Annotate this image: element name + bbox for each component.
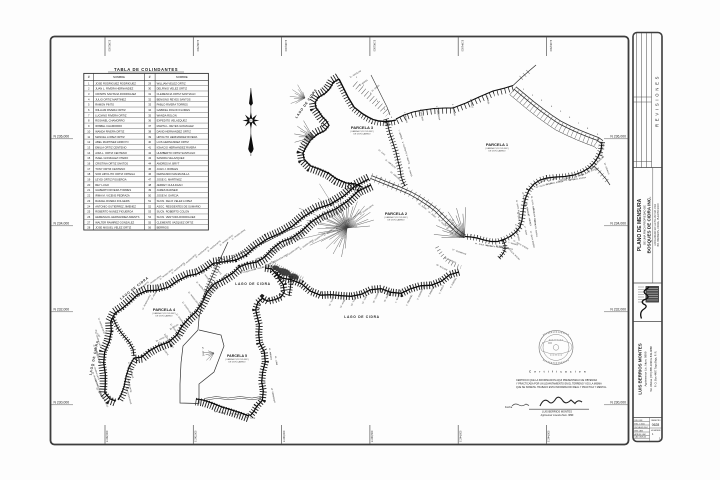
svg-text:QUE SE SOMETE. TRABAJO ESTA IN: QUE SE SOMETE. TRABAJO ESTA INFORMACION … xyxy=(516,386,607,389)
svg-text:55: 55 xyxy=(148,220,151,224)
svg-text:BENIGNO REYES SANTOS: BENIGNO REYES SANTOS xyxy=(157,97,191,101)
svg-text:MANUEL LOPEZ ORTIZ: MANUEL LOPEZ ORTIZ xyxy=(95,135,125,139)
svg-text:SUCN. FELIX VELEZ LOPEZ: SUCN. FELIX VELEZ LOPEZ xyxy=(157,199,193,203)
svg-text:LUIS BERRIOS MONTES: LUIS BERRIOS MONTES xyxy=(542,409,572,413)
svg-text:ISAEL GONZALEZ OTERO: ISAEL GONZALEZ OTERO xyxy=(95,156,128,160)
svg-text:43: 43 xyxy=(148,156,151,160)
svg-text:JOSE M. GARCIA: JOSE M. GARCIA xyxy=(157,194,179,198)
svg-text:HOJA NUM.: HOJA NUM. xyxy=(651,429,661,432)
svg-text:22: 22 xyxy=(87,194,90,198)
svg-text:ASOC. RESIDENTES DE SUMARIO: ASOC. RESIDENTES DE SUMARIO xyxy=(157,204,201,208)
svg-text:15: 15 xyxy=(87,156,90,160)
svg-text:JUAN J. ROBLES: JUAN J. ROBLES xyxy=(157,167,179,171)
svg-text:E 243,000: E 243,000 xyxy=(283,430,286,442)
svg-text:Fecha: Fecha xyxy=(505,405,513,409)
svg-text:SUCN. VENTURA RODRIGUEZ: SUCN. VENTURA RODRIGUEZ xyxy=(157,215,196,219)
svg-text:DE DON CAMINO: DE DON CAMINO xyxy=(489,150,506,153)
svg-text:53: 53 xyxy=(148,210,151,214)
svg-text:34: 34 xyxy=(148,108,151,112)
svg-text:SOR HIPOLITO ORTIZ ORTEGA: SOR HIPOLITO ORTIZ ORTEGA xyxy=(95,172,135,176)
svg-text:33: 33 xyxy=(148,103,151,107)
svg-text:31: 31 xyxy=(148,92,151,96)
svg-text:N 230,000: N 230,000 xyxy=(54,401,70,405)
svg-text:WANDA ROLON: WANDA ROLON xyxy=(157,113,177,117)
svg-text:CAD. 0628-04: CAD. 0628-04 xyxy=(635,436,646,439)
svg-text:LAGO DE CIDRA: LAGO DE CIDRA xyxy=(235,282,270,286)
svg-text:29: 29 xyxy=(148,81,151,85)
svg-text:BOSQUES DE CIDRA INC.: BOSQUES DE CIDRA INC. xyxy=(647,197,652,254)
svg-text:JAMES RADNER: JAMES RADNER xyxy=(157,188,178,192)
svg-text:11: 11 xyxy=(87,135,90,139)
svg-text:E 243,500: E 243,500 xyxy=(371,430,374,442)
svg-text:BO. BAYAMON, CIDRA, PUERTO RIC: BO. BAYAMON, CIDRA, PUERTO RICO xyxy=(657,203,660,246)
svg-text:N 232,000: N 232,000 xyxy=(54,308,70,312)
svg-text:#: # xyxy=(88,75,90,79)
svg-text:DELFINIO VELEZ ORTIZ: DELFINIO VELEZ ORTIZ xyxy=(157,87,188,91)
svg-text:23: 23 xyxy=(87,199,90,203)
svg-text:FERNANDO MANZANILLA: FERNANDO MANZANILLA xyxy=(157,172,190,176)
svg-text:CRISTINA ORTIZ SANTOS: CRISTINA ORTIZ SANTOS xyxy=(95,162,128,166)
svg-text:LUIS BERRIOS MONTES: LUIS BERRIOS MONTES xyxy=(638,343,643,394)
svg-text:IRMA M. VICENS PEDRAZA: IRMA M. VICENS PEDRAZA xyxy=(95,194,130,198)
svg-text:JOSE RODRIGUEZ RODRIGUEZ: JOSE RODRIGUEZ RODRIGUEZ xyxy=(95,81,136,85)
svg-text:IRISBEL CHAMORRO: IRISBEL CHAMORRO xyxy=(95,124,122,128)
svg-text:FECHA 03-2004: FECHA 03-2004 xyxy=(635,426,648,429)
svg-text:16: 16 xyxy=(87,162,90,166)
svg-text:Agrimensor Lic. Num. 9899: Agrimensor Lic. Num. 9899 xyxy=(644,351,648,386)
svg-text:N 230,000: N 230,000 xyxy=(610,401,626,405)
svg-text:IGNACIO HERNANDEZ RIVERA: IGNACIO HERNANDEZ RIVERA xyxy=(157,145,197,149)
svg-text:ESC. 1:2000: ESC. 1:2000 xyxy=(635,423,645,425)
svg-text:18: 18 xyxy=(87,172,90,176)
svg-text:54: 54 xyxy=(148,215,151,219)
svg-text:REY LUGO: REY LUGO xyxy=(95,183,109,187)
svg-text:CRISPIN SANTANA RODRIGUEZ: CRISPIN SANTANA RODRIGUEZ xyxy=(95,92,136,96)
svg-text:PABLO RIVERA TORRES: PABLO RIVERA TORRES xyxy=(157,103,188,107)
svg-text:50: 50 xyxy=(148,194,151,198)
svg-text:12: 12 xyxy=(87,140,90,144)
svg-text:10: 10 xyxy=(87,129,90,133)
svg-text:E 244,000: E 244,000 xyxy=(459,430,462,442)
svg-text:JOSE MIGUEL VELEZ ORTIZ: JOSE MIGUEL VELEZ ORTIZ xyxy=(95,226,131,230)
svg-text:Tel. Oficina (787) 885-1099 &: Tel. Oficina (787) 885-1099 & 843-4888 xyxy=(649,346,653,392)
svg-text:ANTONIO GUTIERREZ JIMENEZ: ANTONIO GUTIERREZ JIMENEZ xyxy=(95,204,136,208)
svg-text:E 242,500: E 242,500 xyxy=(195,430,198,442)
svg-text:E 244,500: E 244,500 xyxy=(548,430,551,442)
svg-text:RAFAEL RIVERA FOLGERS: RAFAEL RIVERA FOLGERS xyxy=(95,199,130,203)
svg-text:ROSANEL CHAMORRO: ROSANEL CHAMORRO xyxy=(95,119,124,123)
svg-text:DAVID HERNANDEZ ORTIZ: DAVID HERNANDEZ ORTIZ xyxy=(157,129,192,133)
svg-text:Agrimensor Licencia Num. 9899: Agrimensor Licencia Num. 9899 xyxy=(541,414,574,417)
svg-text:17: 17 xyxy=(87,167,90,171)
svg-text:E 244,000: E 244,000 xyxy=(461,40,464,52)
svg-text:39: 39 xyxy=(148,135,151,139)
svg-text:42: 42 xyxy=(148,151,151,155)
svg-text:ABEL MARTINEZ ARROYO: ABEL MARTINEZ ARROYO xyxy=(95,140,128,144)
svg-text:PARCELA 4: PARCELA 4 xyxy=(153,307,176,312)
svg-text:R E V I S I O N E S: R E V I S I O N E S xyxy=(655,76,660,127)
svg-text:PARCELA 5: PARCELA 5 xyxy=(227,354,247,358)
svg-text:E 244,500: E 244,500 xyxy=(549,40,552,52)
svg-text:26: 26 xyxy=(87,215,90,219)
svg-text:36: 36 xyxy=(148,119,151,123)
svg-text:CLEMENTE VAZQUEZ ORTIZ: CLEMENTE VAZQUEZ ORTIZ xyxy=(157,220,194,224)
svg-text:CERTIFICO QUE LA INFORMACION: CERTIFICO QUE LA INFORMACION AQUI PRESEN… xyxy=(516,379,597,382)
svg-text:20: 20 xyxy=(87,183,90,187)
svg-text:P. O. Box 4487 Toga Baja, P. R: P. O. Box 4487 Toga Baja, P. R. xyxy=(653,351,657,388)
svg-text:N 236,000: N 236,000 xyxy=(610,135,626,139)
svg-text:41: 41 xyxy=(148,145,151,149)
svg-text:N 232,000: N 232,000 xyxy=(610,308,626,312)
svg-text:E 243,000: E 243,000 xyxy=(284,40,287,52)
svg-text:JUAN L. RIVERA HERNANDEZ: JUAN L. RIVERA HERNANDEZ xyxy=(95,87,133,91)
svg-text:WALTER RAMIREZ GONZALEZ: WALTER RAMIREZ GONZALEZ xyxy=(95,220,134,224)
svg-text:WILLIAM VELEZ ORTIZ: WILLIAM VELEZ ORTIZ xyxy=(157,81,186,85)
svg-text:46: 46 xyxy=(148,172,151,176)
svg-text:EMILIA ORTIZ CENTENO: EMILIA ORTIZ CENTENO xyxy=(95,145,126,149)
svg-text:DE DON CAMINO: DE DON CAMINO xyxy=(229,361,246,364)
svg-text:37: 37 xyxy=(148,124,151,128)
svg-text:SUCN. ROBERTO COLON: SUCN. ROBERTO COLON xyxy=(157,210,190,214)
svg-text:GILBERTO RIVERA TORRES: GILBERTO RIVERA TORRES xyxy=(95,188,131,192)
svg-text:Y PRACTICADA POR UN LEVANTAMIE: Y PRACTICADA POR UN LEVANTAMIENTO EN EL … xyxy=(516,383,602,386)
svg-text:E 242,000: E 242,000 xyxy=(106,430,109,442)
svg-text:LEYDI ORTIZ FIGUEROA: LEYDI ORTIZ FIGUEROA xyxy=(95,178,127,182)
svg-text:RAMON PINTO: RAMON PINTO xyxy=(95,103,114,107)
svg-text:N 234,000: N 234,000 xyxy=(610,222,626,226)
svg-text:48: 48 xyxy=(148,183,151,187)
svg-text:HIPOLITO HERNANDEZ RIVERA: HIPOLITO HERNANDEZ RIVERA xyxy=(157,135,198,139)
svg-text:SANDRA VELAZQUEZ: SANDRA VELAZQUEZ xyxy=(157,156,185,160)
svg-text:N: N xyxy=(249,119,251,123)
svg-text:GABRIEL ROLON FLORES: GABRIEL ROLON FLORES xyxy=(157,108,191,112)
svg-text:DE DON CAMINO: DE DON CAMINO xyxy=(388,219,405,222)
svg-text:47: 47 xyxy=(148,178,151,182)
svg-text:E 242,500: E 242,500 xyxy=(196,40,199,52)
svg-text:E 243,500: E 243,500 xyxy=(372,40,375,52)
svg-text:NOMBRE: NOMBRE xyxy=(176,75,188,79)
svg-text:MARTA L. REYES GONZALEZ: MARTA L. REYES GONZALEZ xyxy=(157,124,194,128)
svg-text:44: 44 xyxy=(148,162,151,166)
svg-text:TABLA DE COLINDANTES: TABLA DE COLINDANTES xyxy=(114,67,178,72)
svg-text:40: 40 xyxy=(148,140,151,144)
svg-text:0628: 0628 xyxy=(652,423,660,427)
svg-text:ROBERTO NUNEZ FIGUEROA: ROBERTO NUNEZ FIGUEROA xyxy=(95,210,133,214)
svg-text:E 242,000: E 242,000 xyxy=(108,40,111,52)
svg-text:WILLIAM RIVERA ORTIZ: WILLIAM RIVERA ORTIZ xyxy=(95,108,126,112)
svg-text:EXPEDITO VELAZQUEZ: EXPEDITO VELAZQUEZ xyxy=(157,119,188,123)
svg-text:DE DON CAMINO: DE DON CAMINO xyxy=(156,315,173,318)
svg-text:38: 38 xyxy=(148,129,151,133)
svg-text:TONY ORTIZ CENTENO: TONY ORTIZ CENTENO xyxy=(95,167,125,171)
svg-text:24: 24 xyxy=(87,204,90,208)
svg-text:JOSE G. MARTINEZ: JOSE G. MARTINEZ xyxy=(157,178,182,182)
svg-text:NOMBRE: NOMBRE xyxy=(113,75,125,79)
svg-text:32: 32 xyxy=(148,97,151,101)
svg-text:DE DON CAMINO: DE DON CAMINO xyxy=(354,133,371,136)
svg-text:JEFREY CHULDAAN: JEFREY CHULDAAN xyxy=(157,183,183,187)
svg-text:N 236,000: N 236,000 xyxy=(54,135,70,139)
svg-text:HUMBERTO ORTIZ SANTIAGO: HUMBERTO ORTIZ SANTIAGO xyxy=(157,151,196,155)
svg-text:WANDA RIVERA ORTIZ: WANDA RIVERA ORTIZ xyxy=(95,129,124,133)
svg-text:APROB. LBM: APROB. LBM xyxy=(635,433,646,436)
svg-text:19: 19 xyxy=(87,178,90,182)
svg-text:51: 51 xyxy=(148,199,151,203)
svg-text:PARCELA 1: PARCELA 1 xyxy=(486,142,509,147)
svg-text:45: 45 xyxy=(148,167,151,171)
svg-text:LUCIANO RIVERA ORTIZ: LUCIANO RIVERA ORTIZ xyxy=(95,113,127,117)
svg-text:30: 30 xyxy=(148,87,151,91)
svg-text:AIDA L. ORTIZ CENTENO: AIDA L. ORTIZ CENTENO xyxy=(95,151,127,155)
svg-text:HEMENGOL HERNANDEZ ARENTS: HEMENGOL HERNANDEZ ARENTS xyxy=(95,215,139,219)
svg-text:56: 56 xyxy=(148,226,151,230)
svg-text:JULIO ORTIZ MARTINEZ: JULIO ORTIZ MARTINEZ xyxy=(95,97,126,101)
svg-text:PARCELA 2: PARCELA 2 xyxy=(385,211,408,216)
svg-text:PARCELA 3: PARCELA 3 xyxy=(351,125,374,130)
svg-text:#: # xyxy=(149,75,151,79)
svg-text:CATASTRO: CATASTRO xyxy=(651,419,661,422)
svg-text:13: 13 xyxy=(87,145,90,149)
svg-text:49: 49 xyxy=(148,188,151,192)
svg-text:21: 21 xyxy=(87,188,90,192)
svg-text:LAGO DE CIDRA: LAGO DE CIDRA xyxy=(344,315,379,319)
svg-text:LUIS HERNANDEZ ORTIZ: LUIS HERNANDEZ ORTIZ xyxy=(157,140,190,144)
svg-text:27: 27 xyxy=(87,220,90,224)
svg-text:14: 14 xyxy=(87,151,90,155)
svg-text:CLEMENCIA ORTIZ SANTIAGO: CLEMENCIA ORTIZ SANTIAGO xyxy=(157,92,196,96)
svg-text:BERRIOS: BERRIOS xyxy=(157,226,169,230)
svg-text:35: 35 xyxy=(148,113,151,117)
svg-text:PLANO DE MENSURA: PLANO DE MENSURA xyxy=(637,198,643,251)
svg-text:N 234,000: N 234,000 xyxy=(54,222,70,226)
svg-text:28: 28 xyxy=(87,226,90,230)
svg-text:REV. LBM: REV. LBM xyxy=(635,430,644,432)
svg-text:25: 25 xyxy=(87,210,90,214)
svg-text:C e r t i f i c a c i o n: C e r t i f i c a c i o n xyxy=(529,370,587,374)
svg-text:ANDRES M. BRYT: ANDRES M. BRYT xyxy=(157,162,180,166)
svg-text:DIB. LBM: DIB. LBM xyxy=(635,420,643,422)
svg-text:52: 52 xyxy=(148,204,151,208)
